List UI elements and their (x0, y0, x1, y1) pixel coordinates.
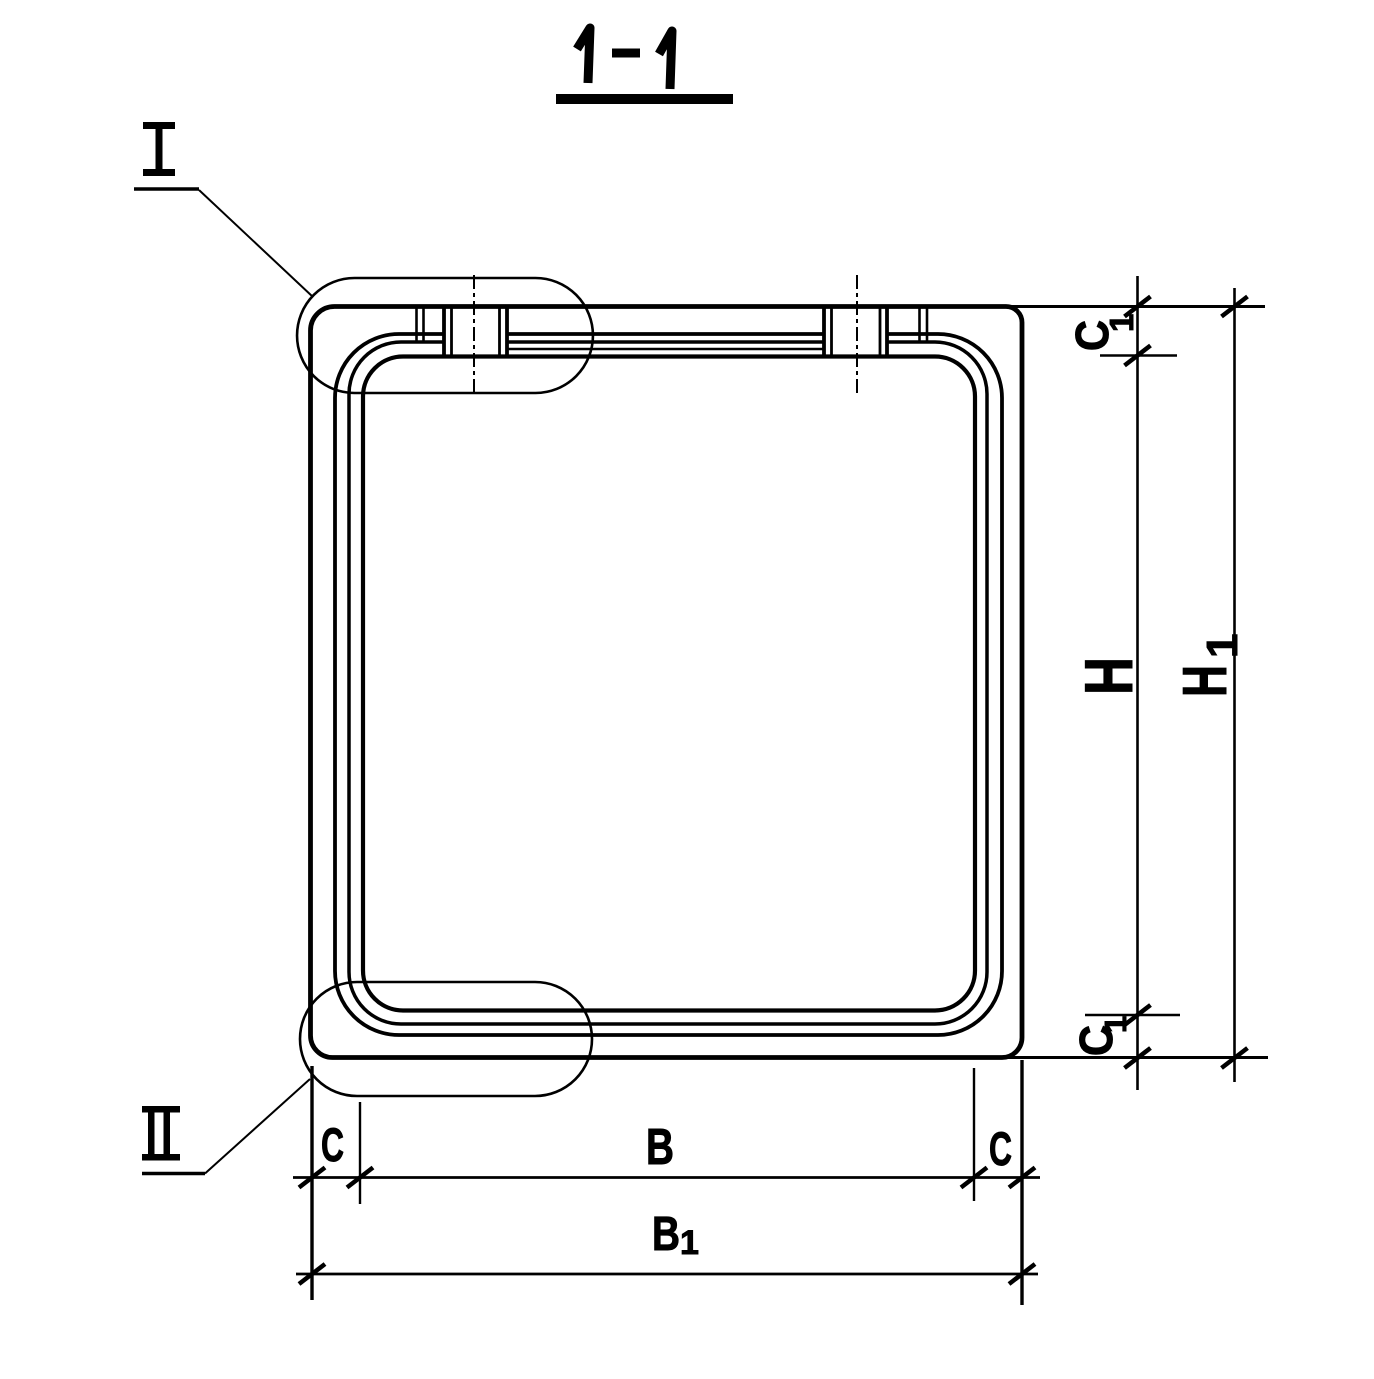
svg-text:H: H (1071, 657, 1147, 695)
svg-text:C: C (321, 1118, 344, 1171)
svg-text:B: B (646, 1118, 674, 1175)
svg-text:C: C (989, 1122, 1012, 1175)
